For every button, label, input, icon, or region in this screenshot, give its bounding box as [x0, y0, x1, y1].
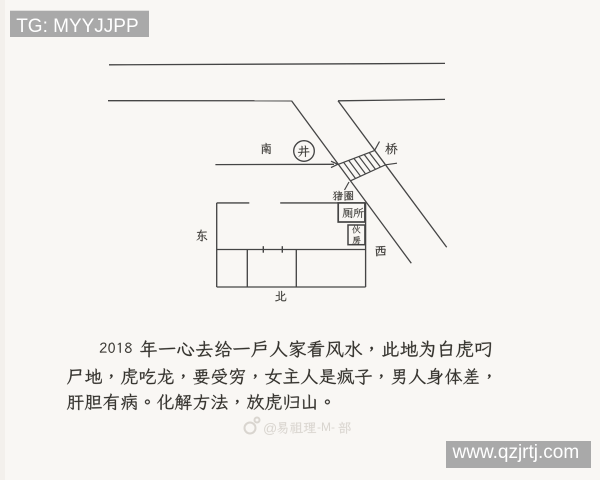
svg-text:TG: MYYJJPP: TG: MYYJJPP: [16, 16, 138, 37]
svg-text:www.qzjrtj.com: www.qzjrtj.com: [452, 442, 580, 463]
svg-text:@: @: [263, 420, 277, 436]
svg-text:-M-: -M-: [317, 420, 335, 434]
